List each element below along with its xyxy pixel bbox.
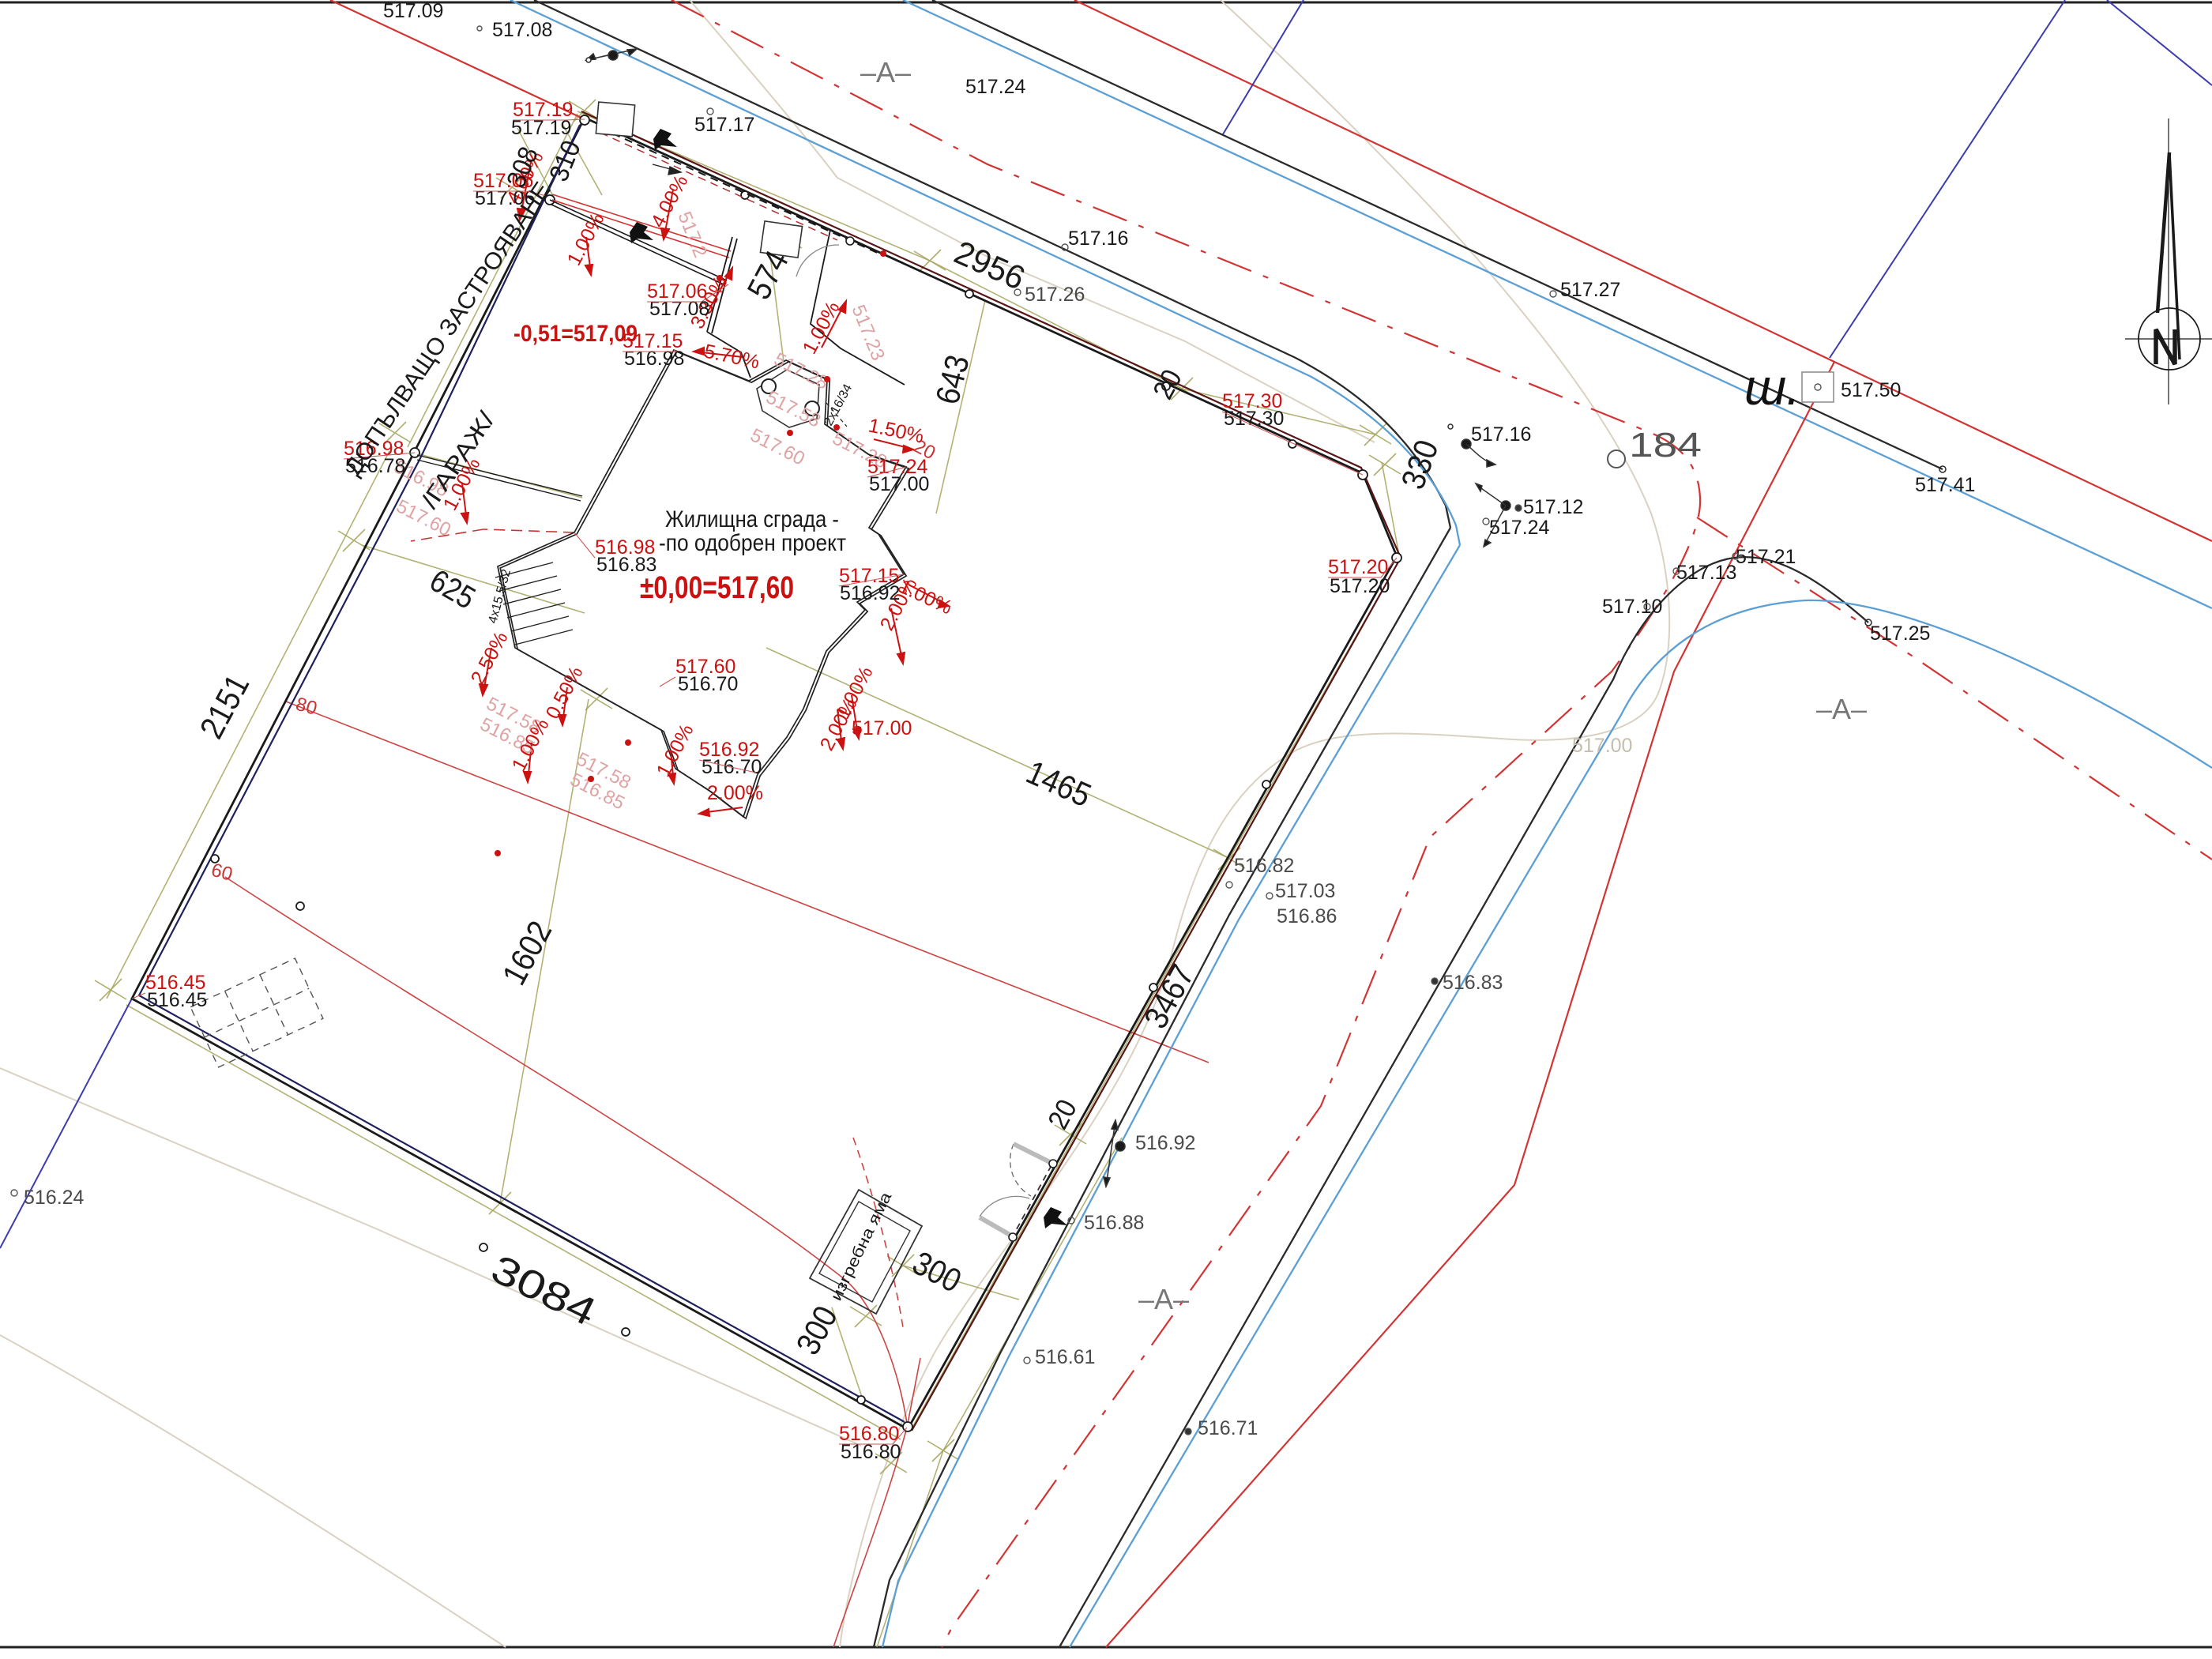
svg-text:517.17: 517.17	[694, 114, 754, 136]
svg-text:517.16: 517.16	[1068, 228, 1128, 250]
svg-text:517.00: 517.00	[1572, 735, 1632, 757]
svg-text:517.16: 517.16	[1471, 423, 1531, 446]
svg-text:517.08: 517.08	[649, 298, 709, 320]
svg-text:517.00: 517.00	[852, 717, 912, 739]
svg-text:516.70: 516.70	[678, 673, 738, 695]
svg-text:517.50: 517.50	[1841, 379, 1901, 401]
svg-text:517.00: 517.00	[869, 473, 929, 495]
svg-text:±0,00=517,60: ±0,00=517,60	[640, 570, 794, 605]
svg-text:2.00%: 2.00%	[707, 782, 763, 804]
svg-text:516.88: 516.88	[1084, 1212, 1144, 1234]
svg-text:516.92: 516.92	[1135, 1132, 1195, 1154]
svg-text:517.08: 517.08	[492, 19, 552, 41]
svg-text:517.20: 517.20	[1330, 575, 1390, 597]
svg-text:–А–: –А–	[1816, 693, 1867, 725]
svg-text:517.30: 517.30	[1224, 408, 1284, 430]
svg-text:517.21: 517.21	[1736, 546, 1796, 568]
svg-text:516.82: 516.82	[1234, 855, 1294, 877]
svg-text:516.24: 516.24	[24, 1187, 85, 1209]
svg-text:516.71: 516.71	[1198, 1417, 1258, 1439]
svg-text:517.13: 517.13	[1676, 562, 1736, 584]
svg-text:517.24: 517.24	[965, 76, 1026, 98]
svg-text:516.86: 516.86	[1277, 905, 1337, 927]
svg-text:184: 184	[1629, 426, 1702, 465]
svg-text:–А–: –А–	[1138, 1283, 1189, 1315]
svg-text:517.09: 517.09	[383, 0, 443, 22]
svg-text:517.27: 517.27	[1560, 279, 1620, 301]
svg-text:-0,51=517,09: -0,51=517,09	[513, 321, 638, 347]
svg-text:Жилищна сграда -: Жилищна сграда -	[665, 506, 839, 532]
svg-text:516.83: 516.83	[1443, 972, 1503, 994]
svg-text:517.41: 517.41	[1915, 474, 1975, 496]
svg-text:517.25: 517.25	[1870, 623, 1930, 645]
svg-text:517.26: 517.26	[1025, 284, 1085, 306]
svg-text:516.61: 516.61	[1035, 1346, 1095, 1368]
svg-text:516.92: 516.92	[840, 582, 900, 604]
svg-text:-по одобрен проект: -по одобрен проект	[659, 530, 846, 556]
svg-text:517.10: 517.10	[1602, 596, 1662, 618]
svg-text:517.12: 517.12	[1523, 496, 1583, 518]
svg-text:516.45: 516.45	[147, 989, 207, 1011]
svg-text:–А–: –А–	[860, 56, 911, 88]
svg-text:517.03: 517.03	[1275, 880, 1335, 902]
svg-text:ш.: ш.	[1744, 359, 1800, 416]
svg-text:517.24: 517.24	[1489, 517, 1550, 539]
